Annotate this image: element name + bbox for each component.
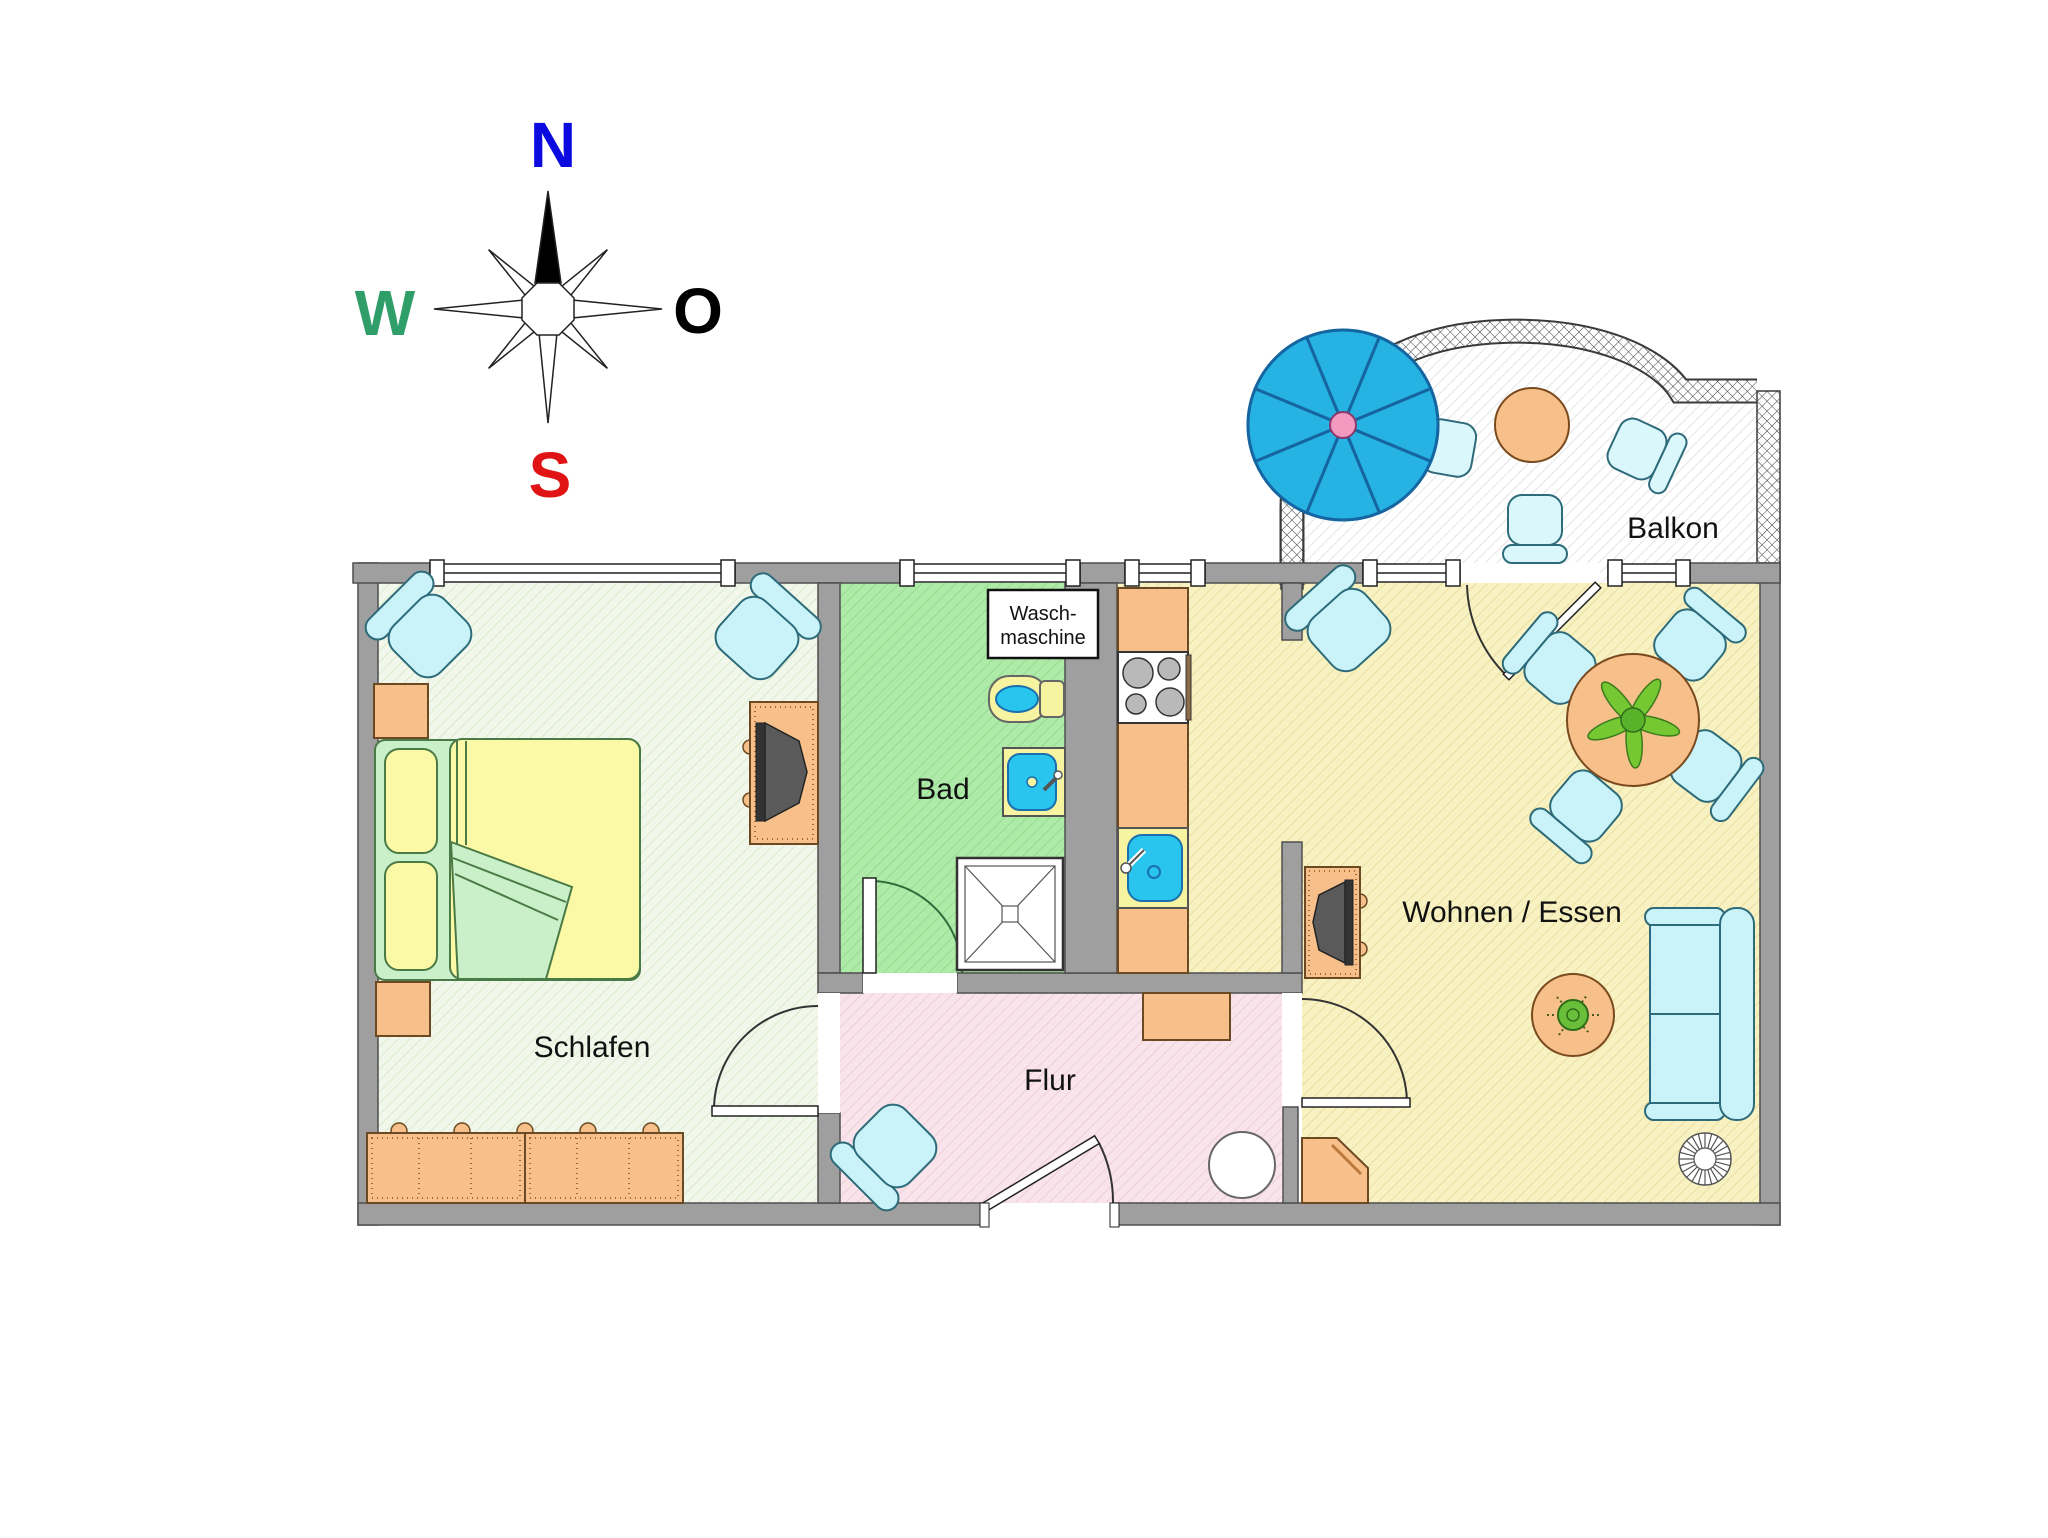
- washing-machine-label-1: Wasch-: [1009, 603, 1076, 625]
- kitchen-sink-basin: [1128, 835, 1182, 901]
- floor-lamp-symbol: [1679, 1133, 1731, 1185]
- compass-north-needle: [535, 191, 561, 283]
- stove: [1118, 652, 1191, 723]
- wall-outer-right: [1760, 563, 1780, 1225]
- window-wohnen-left: [1363, 560, 1460, 586]
- opening-bad-door: [863, 973, 957, 993]
- sofa: [1645, 908, 1754, 1120]
- bed-pillow-top: [385, 749, 437, 853]
- washing-machine: Wasch- maschine: [988, 590, 1098, 658]
- balcony-post-right: [1757, 391, 1780, 583]
- compass-label-north: N: [530, 109, 576, 181]
- label-flur: Flur: [1024, 1064, 1076, 1097]
- sofa-backrest: [1720, 908, 1754, 1120]
- stove-burner: [1123, 658, 1153, 688]
- wall-top-seg3: [1080, 563, 1125, 583]
- wall-flur-top-seg1: [818, 973, 863, 993]
- tv-sideboard-wohnen: [1305, 867, 1367, 978]
- door-entrance-frame-left: [980, 1203, 989, 1227]
- tv-wohnen-screen: [1345, 880, 1353, 965]
- toilet-bowl: [996, 686, 1038, 712]
- compass-label-west: W: [355, 277, 416, 349]
- tv-dresser-schlafen: [743, 702, 818, 844]
- floor-plan-page: N W O S: [0, 0, 2048, 1538]
- floor-plan-drawing: N W O S: [0, 0, 2048, 1538]
- window-bad: [900, 560, 1080, 586]
- compass-label-east: O: [673, 275, 723, 347]
- door-wohnen-leaf: [1302, 1098, 1410, 1107]
- opening-balcony-door: [1460, 563, 1600, 583]
- label-wohnen: Wohnen / Essen: [1402, 896, 1622, 929]
- label-schlafen: Schlafen: [534, 1031, 651, 1064]
- bed-pillow-bottom: [385, 862, 437, 970]
- shower-drain: [1002, 906, 1018, 922]
- balcony-table: [1495, 388, 1569, 462]
- opening-schlafen-door: [818, 993, 840, 1113]
- bath-sink-faucet: [1054, 771, 1062, 779]
- wall-bottom-seg2: [1113, 1203, 1780, 1225]
- door-schlafen-leaf: [712, 1106, 818, 1116]
- sofa-cushion: [1650, 1014, 1720, 1103]
- kitchen-sink: [1118, 828, 1188, 908]
- nightstand-top: [374, 684, 428, 738]
- compass-label-south: S: [529, 439, 572, 511]
- parasol-center: [1330, 412, 1356, 438]
- coffee-table: [1532, 974, 1614, 1056]
- label-balkon: Balkon: [1627, 512, 1719, 545]
- window-schlafen: [430, 560, 735, 586]
- tv-schlafen-screen: [756, 723, 765, 821]
- sofa-cushion: [1650, 925, 1720, 1014]
- double-bed: [375, 739, 640, 980]
- opening-wohnen-door: [1282, 993, 1302, 1103]
- flur-round-table: [1209, 1132, 1275, 1198]
- flur-cabinet: [1143, 993, 1230, 1040]
- stove-handle: [1186, 655, 1191, 720]
- wardrobe: [367, 1123, 683, 1203]
- door-entrance-frame-right: [1110, 1203, 1119, 1227]
- kitchen-sink-faucet: [1121, 863, 1131, 873]
- bath-sink: [1003, 748, 1065, 816]
- shower: [957, 858, 1063, 970]
- window-kitchen: [1125, 560, 1205, 586]
- sofa-armrest-bottom: [1645, 1102, 1725, 1120]
- compass-hub: [522, 283, 574, 335]
- toilet: [989, 676, 1064, 722]
- parasol-umbrella: [1248, 330, 1438, 520]
- kitchen-counter: [1118, 588, 1188, 973]
- compass-star: [434, 191, 662, 423]
- opening-entrance-door: [987, 1203, 1113, 1225]
- washing-machine-label-2: maschine: [1000, 627, 1086, 649]
- label-bad: Bad: [916, 773, 969, 806]
- wall-top-seg5: [1690, 563, 1780, 583]
- sofa-armrest-top: [1645, 908, 1725, 926]
- wall-flur-top-seg2: [957, 973, 1302, 993]
- wall-schlafen-bad: [818, 583, 840, 973]
- wall-wohnen-stub-mid: [1282, 842, 1302, 973]
- door-bad-leaf: [863, 878, 876, 973]
- stove-burner: [1158, 658, 1180, 680]
- stove-burner: [1126, 694, 1146, 714]
- compass-rose: N W O S: [355, 109, 723, 511]
- kitchen: [1118, 588, 1191, 973]
- wardrobe-unit-left: [367, 1133, 525, 1203]
- kitchen-passage-hatch: [1282, 640, 1302, 842]
- wardrobe-unit-right: [525, 1133, 683, 1203]
- nightstand-bottom: [376, 982, 430, 1036]
- balcony-chair: [1503, 495, 1567, 563]
- window-wohnen-right: [1608, 560, 1690, 586]
- stove-burner: [1156, 688, 1184, 716]
- wall-wohnen-stub-bottom: [1283, 1107, 1298, 1203]
